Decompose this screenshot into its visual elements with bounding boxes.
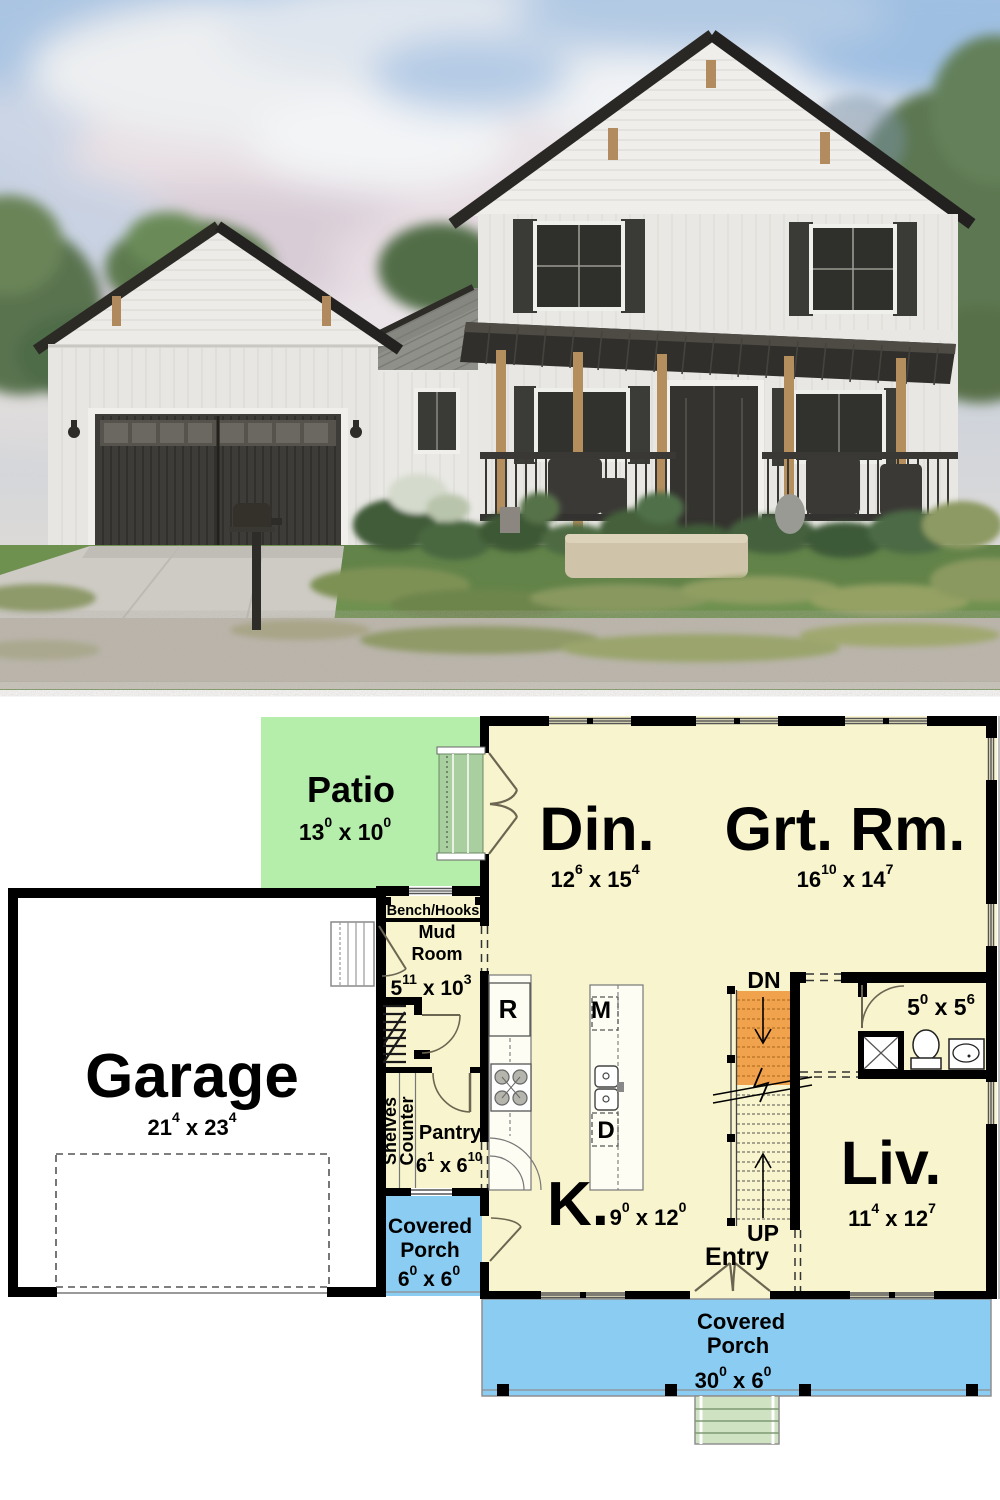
svg-text:Grt. Rm.: Grt. Rm.: [725, 795, 966, 863]
svg-text:130 x 100: 130 x 100: [299, 814, 392, 845]
svg-text:Entry: Entry: [705, 1243, 769, 1271]
svg-text:Bench/Hooks: Bench/Hooks: [387, 903, 480, 919]
svg-text:Room: Room: [412, 944, 463, 964]
svg-text:D: D: [597, 1117, 614, 1144]
svg-text:Patio: Patio: [307, 769, 395, 810]
svg-text:Mud: Mud: [419, 922, 456, 942]
svg-text:Porch: Porch: [707, 1333, 769, 1358]
svg-text:M: M: [591, 997, 611, 1024]
svg-text:50 x 56: 50 x 56: [907, 991, 975, 1020]
svg-text:DN: DN: [747, 967, 780, 993]
svg-text:Covered: Covered: [697, 1309, 785, 1334]
svg-text:K.: K.: [547, 1170, 609, 1239]
svg-text:Liv.: Liv.: [841, 1129, 942, 1197]
svg-text:R: R: [499, 994, 518, 1024]
svg-text:Covered: Covered: [388, 1215, 472, 1238]
svg-text:300 x 60: 300 x 60: [695, 1363, 772, 1393]
svg-text:Porch: Porch: [400, 1239, 460, 1262]
svg-text:Garage: Garage: [85, 1042, 299, 1111]
svg-text:Counter: Counter: [397, 1097, 417, 1166]
svg-text:Pantry: Pantry: [419, 1122, 482, 1144]
svg-text:Din.: Din.: [539, 795, 654, 863]
